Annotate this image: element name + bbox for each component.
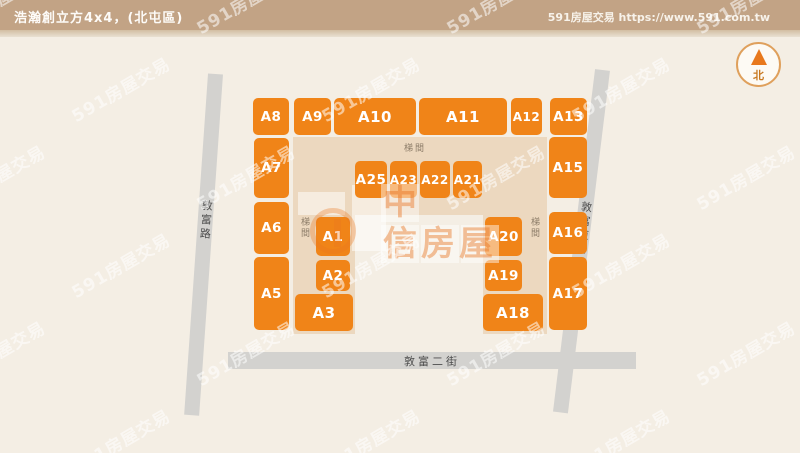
unit-block-A9[interactable]: A9 (294, 98, 331, 135)
unit-block-A13[interactable]: A13 (550, 98, 587, 135)
unit-block-A5[interactable]: A5 (254, 257, 289, 330)
stairwell-label-top: 梯間 (404, 141, 426, 154)
units-layer: A8A9A10A11A12A13A7A6A5A15A16A17A25A23A22… (0, 0, 800, 453)
unit-block-A8[interactable]: A8 (253, 98, 289, 135)
north-arrow-icon (751, 49, 767, 65)
unit-block-A10[interactable]: A10 (334, 98, 416, 135)
site-plan-page: 浩瀚創立方4x4，(北屯區) 591房屋交易 https://www.591.c… (0, 0, 800, 453)
unit-block-A11[interactable]: A11 (419, 98, 507, 135)
unit-block-A23[interactable]: A23 (390, 161, 417, 198)
unit-block-A12[interactable]: A12 (511, 98, 542, 135)
unit-block-A6[interactable]: A6 (254, 202, 289, 254)
unit-block-A2[interactable]: A2 (316, 260, 350, 291)
unit-block-A22[interactable]: A22 (420, 161, 450, 198)
unit-block-A19[interactable]: A19 (485, 260, 522, 291)
unit-block-A17[interactable]: A17 (549, 257, 587, 330)
unit-block-A21[interactable]: A21 (453, 161, 482, 198)
unit-block-A25[interactable]: A25 (355, 161, 387, 198)
unit-block-A3[interactable]: A3 (295, 294, 353, 331)
compass-north-label: 北 (738, 67, 779, 83)
compass: 北 (736, 42, 781, 87)
unit-block-A1[interactable]: A1 (316, 217, 350, 256)
unit-block-A7[interactable]: A7 (254, 138, 289, 198)
unit-block-A20[interactable]: A20 (485, 217, 522, 256)
unit-block-A18[interactable]: A18 (483, 294, 543, 331)
unit-block-A15[interactable]: A15 (549, 137, 587, 198)
unit-block-A16[interactable]: A16 (549, 212, 587, 254)
stairwell-label-right: 梯間 (528, 217, 541, 239)
stairwell-label-left: 梯間 (298, 217, 311, 239)
